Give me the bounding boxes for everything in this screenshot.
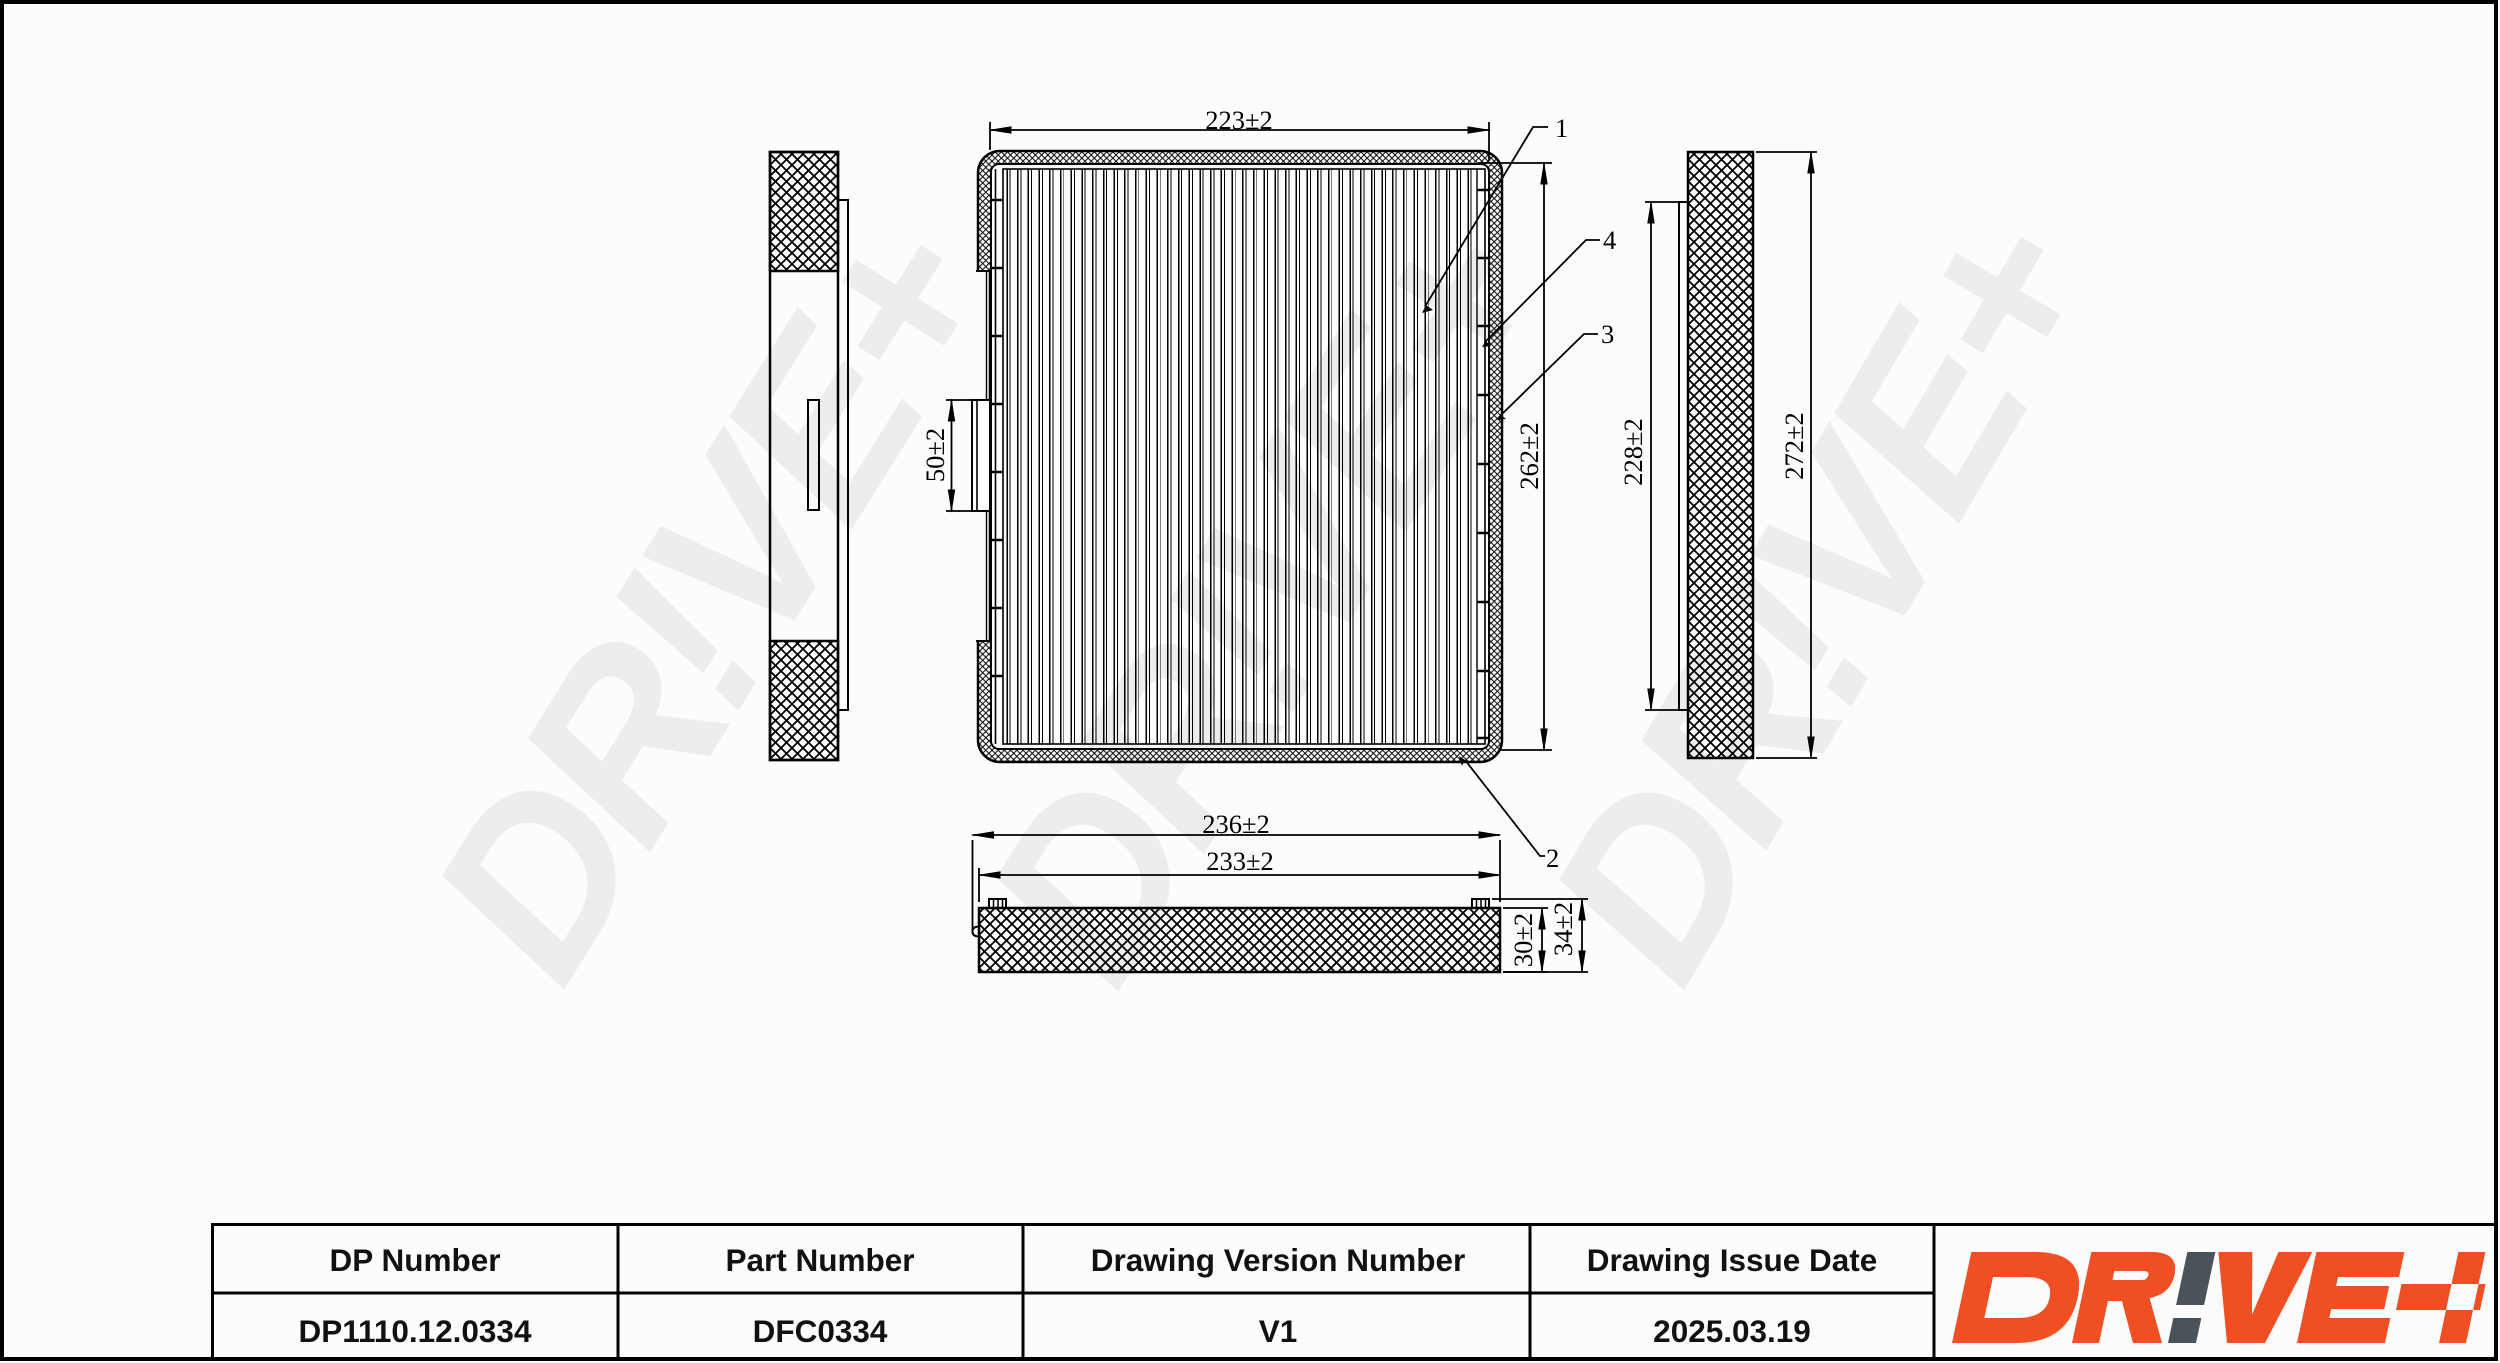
svg-text:1: 1 [1555,113,1568,143]
svg-text:DP1110.12.0334: DP1110.12.0334 [299,1313,532,1349]
svg-text:Part Number: Part Number [725,1242,914,1278]
svg-text:V1: V1 [1259,1313,1298,1349]
svg-text:Drawing Version Number: Drawing Version Number [1091,1242,1466,1278]
svg-text:30±2: 30±2 [1508,913,1538,967]
svg-text:2: 2 [1546,843,1559,873]
svg-text:236±2: 236±2 [1202,809,1270,839]
svg-text:3: 3 [1601,319,1614,349]
svg-text:262±2: 262±2 [1514,422,1544,490]
svg-text:223±2: 223±2 [1205,105,1273,135]
svg-text:233±2: 233±2 [1206,846,1274,876]
svg-text:DP Number: DP Number [330,1242,501,1278]
svg-text:228±2: 228±2 [1618,418,1648,486]
svg-text:DFC0334: DFC0334 [753,1313,888,1349]
svg-text:Drawing Issue Date: Drawing Issue Date [1587,1242,1878,1278]
svg-text:4: 4 [1603,225,1616,255]
svg-text:34±2: 34±2 [1548,902,1578,956]
svg-text:2025.03.19: 2025.03.19 [1653,1313,1811,1349]
svg-text:50±2: 50±2 [920,428,950,482]
svg-text:272±2: 272±2 [1779,412,1809,480]
